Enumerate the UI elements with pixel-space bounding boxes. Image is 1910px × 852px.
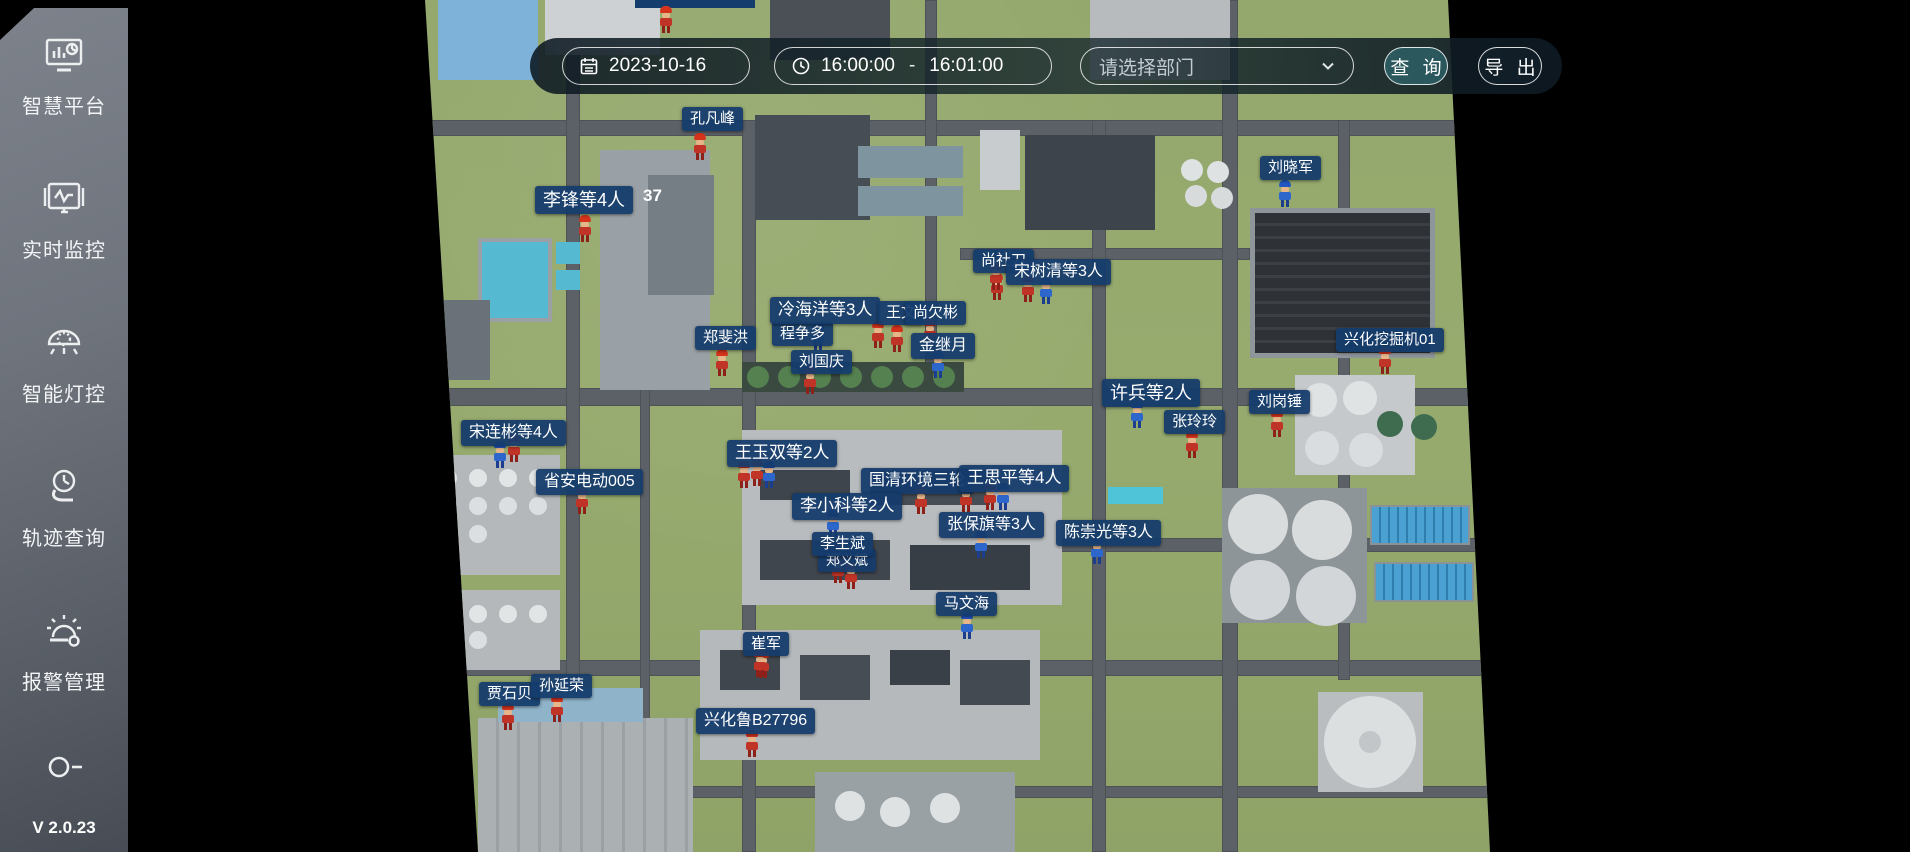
map-road (425, 120, 1465, 136)
map-name-label[interactable]: 张玲玲 (1164, 410, 1225, 434)
worker-body (502, 715, 514, 723)
map-name-label[interactable]: 李锋等4人 (535, 186, 633, 214)
map-building (1108, 487, 1163, 504)
worker-legs (834, 576, 842, 583)
map-tank (529, 497, 547, 515)
map-tank (1343, 381, 1377, 415)
map-name-label[interactable]: 宋连彬等4人 (461, 420, 566, 446)
map-tank (1377, 411, 1403, 437)
map-building (755, 115, 870, 220)
worker-marker-red[interactable] (714, 349, 730, 376)
person-icon (41, 754, 87, 800)
map-building (960, 660, 1030, 705)
map-name-label[interactable]: 省安电动005 (536, 469, 643, 495)
map-name-label[interactable]: 程争多 (772, 322, 833, 346)
worker-body (551, 707, 563, 715)
worker-body (716, 361, 728, 369)
worker-legs (934, 371, 942, 378)
department-placeholder: 请选择部门 (1099, 53, 1194, 80)
sidebar-item-track[interactable]: 轨迹查询 (0, 466, 128, 551)
worker-body (804, 379, 816, 387)
map-tank (469, 497, 487, 515)
platform-icon (41, 34, 87, 80)
worker-legs (1093, 557, 1101, 564)
map-tank (1211, 187, 1233, 209)
worker-body (1279, 192, 1291, 200)
map-name-label[interactable]: 国清环境三轮 (861, 468, 973, 494)
worker-legs (1273, 430, 1281, 437)
map-building (858, 146, 963, 178)
worker-legs (504, 723, 512, 730)
department-select[interactable]: 请选择部门 (1080, 47, 1354, 85)
map-building (1370, 505, 1470, 545)
worker-body (932, 363, 944, 371)
worker-marker-blue[interactable] (959, 612, 975, 639)
map-tank (469, 525, 487, 543)
map-name-label[interactable]: 兴化鲁B27796 (696, 708, 815, 734)
map-tank (902, 366, 924, 388)
track-icon (41, 466, 87, 512)
worker-legs (1281, 200, 1289, 207)
worker-body (915, 499, 927, 507)
map-building (1374, 562, 1474, 602)
worker-body (891, 337, 903, 345)
map-tank (1230, 560, 1290, 620)
worker-legs (553, 715, 561, 722)
map-building (890, 650, 950, 685)
map-building (1025, 135, 1155, 230)
worker-legs (847, 582, 855, 589)
map-tank (469, 631, 487, 649)
map-name-label[interactable]: 孔凡峰 (682, 107, 743, 131)
monitor-icon (41, 178, 87, 224)
worker-legs (578, 507, 586, 514)
helmet-icon (716, 349, 728, 356)
map-name-label[interactable]: 李小科等2人 (792, 493, 902, 520)
map-tank (1181, 159, 1203, 181)
worker-marker-blue[interactable] (1277, 180, 1293, 207)
worker-body (1379, 359, 1391, 367)
worker-legs (986, 503, 994, 510)
worker-body (990, 275, 1002, 283)
worker-body (827, 522, 839, 530)
worker-legs (874, 341, 882, 348)
worker-body (960, 497, 972, 505)
worker-legs (696, 153, 704, 160)
map-tank (499, 497, 517, 515)
map-tank (930, 793, 960, 823)
worker-legs (510, 455, 518, 462)
map-tank (835, 791, 865, 821)
map-building (556, 270, 580, 290)
sidebar-item-label: 实时监控 (0, 234, 128, 263)
map-name-label[interactable]: 王思平等4人 (959, 465, 1069, 492)
time-range-picker[interactable]: 16:00:00 - 16:01:00 (774, 47, 1052, 85)
map-tank (439, 497, 457, 515)
map-building (478, 718, 693, 852)
map-name-label[interactable]: 陈崇光等3人 (1056, 520, 1161, 546)
helmet-icon (660, 6, 672, 13)
export-button[interactable]: 导 出 (1478, 47, 1542, 85)
worker-body (576, 499, 588, 507)
sidebar-item-monitor[interactable]: 实时监控 (0, 178, 128, 263)
worker-marker-red[interactable] (744, 730, 760, 757)
worker-legs (999, 503, 1007, 510)
map-name-label[interactable]: 刘晓军 (1260, 156, 1321, 180)
time-start-value: 16:00:00 (821, 55, 895, 77)
map-building (858, 186, 963, 216)
map-name-label[interactable]: 郑斐洪 (695, 326, 756, 350)
worker-body (746, 742, 758, 750)
map-count-text: 37 (643, 186, 662, 206)
map-tank (880, 797, 910, 827)
map-name-label[interactable]: 王玉双等2人 (727, 440, 837, 467)
time-end-value: 16:01:00 (929, 55, 1003, 77)
worker-legs (756, 670, 764, 677)
worker-body (975, 543, 987, 551)
worker-legs (765, 481, 773, 488)
map-tank (747, 366, 769, 388)
worker-body (494, 453, 506, 461)
worker-legs (1188, 451, 1196, 458)
map-tank (439, 631, 457, 649)
map-name-label[interactable]: 刘岗锤 (1249, 390, 1310, 414)
map-building (635, 0, 755, 8)
map-building (430, 300, 490, 380)
chevron-down-icon (1319, 57, 1337, 75)
worker-body (754, 662, 766, 670)
worker-legs (977, 551, 985, 558)
sidebar-item-label: 轨迹查询 (0, 522, 128, 551)
sidebar-item-light[interactable]: 智能灯控 (0, 322, 128, 407)
map-name-label[interactable]: 马文海 (936, 592, 997, 616)
worker-legs (1042, 297, 1050, 304)
version-label: V 2.0.23 (0, 818, 128, 838)
time-separator: - (909, 55, 915, 77)
map-tank (439, 605, 457, 623)
map-name-label[interactable]: 兴化挖掘机01 (1336, 328, 1444, 352)
helmet-icon (694, 133, 706, 140)
date-picker[interactable]: 2023-10-16 (562, 47, 750, 85)
map-name-label[interactable]: 张保旗等3人 (939, 512, 1044, 538)
map-tank (469, 605, 487, 623)
sidebar-item-label: 报警管理 (0, 666, 128, 695)
map-tank (499, 469, 517, 487)
date-value: 2023-10-16 (609, 55, 706, 77)
worker-legs (993, 293, 1001, 300)
worker-marker-red[interactable] (577, 215, 593, 242)
sidebar-item-label: 智能灯控 (0, 378, 128, 407)
sidebar-item-label: 智慧平台 (0, 90, 128, 119)
worker-legs (917, 507, 925, 514)
worker-marker-red[interactable] (500, 703, 516, 730)
query-button[interactable]: 查 询 (1384, 47, 1448, 85)
worker-body (1271, 422, 1283, 430)
worker-body (763, 473, 775, 481)
worker-body (694, 145, 706, 153)
worker-marker-red[interactable] (870, 321, 886, 348)
calendar-icon (579, 56, 599, 76)
worker-marker-red[interactable] (692, 133, 708, 160)
worker-marker-red[interactable] (889, 325, 905, 352)
map-tank (1292, 500, 1352, 560)
helmet-icon (891, 325, 903, 332)
map-building (556, 242, 580, 264)
map-building (430, 590, 560, 670)
worker-legs (806, 387, 814, 394)
map-name-label[interactable]: 许兵等2人 (1102, 379, 1200, 407)
map-building (980, 130, 1020, 190)
map-tank (499, 605, 517, 623)
worker-body (872, 333, 884, 341)
map-building (800, 655, 870, 700)
sidebar-item-platform[interactable]: 智慧平台 (0, 34, 128, 119)
worker-legs (662, 26, 670, 33)
map-name-label[interactable]: 刘国庆 (791, 350, 852, 374)
worker-body (660, 18, 672, 26)
query-toolbar: 2023-10-16 16:00:00 - 16:01:00 请选择部门 查 询… (530, 38, 1562, 94)
map-name-label[interactable]: 金继月 (911, 333, 975, 359)
worker-body (845, 574, 857, 582)
map-tank (529, 605, 547, 623)
worker-body (1040, 289, 1052, 297)
map-3d-view[interactable]: 程争多冷海洋等3人王文尚欠彬金继月刘国庆郑斐洪尚社刀宋树清等3人孔凡峰李锋等4人… (0, 0, 1910, 852)
map-tank (1359, 731, 1381, 753)
map-tank (1228, 494, 1288, 554)
worker-legs (962, 505, 970, 512)
worker-legs (1381, 367, 1389, 374)
worker-legs (740, 481, 748, 488)
worker-legs (963, 632, 971, 639)
map-name-label[interactable]: 孙延荣 (531, 674, 592, 698)
map-tank (1305, 431, 1339, 465)
map-name-label[interactable]: 尚欠彬 (905, 301, 966, 325)
helmet-icon (579, 215, 591, 222)
map-building (910, 545, 1030, 590)
map-tank (1296, 566, 1356, 626)
sidebar-item-person[interactable] (0, 754, 128, 810)
worker-body (579, 227, 591, 235)
alarm-icon (41, 610, 87, 656)
worker-legs (992, 283, 1000, 290)
clock-icon (791, 56, 811, 76)
worker-marker-red[interactable] (1184, 431, 1200, 458)
map-building (438, 0, 538, 80)
map-name-label[interactable]: 宋树清等3人 (1006, 259, 1111, 285)
worker-legs (496, 461, 504, 468)
map-tank (439, 525, 457, 543)
map-name-label[interactable]: 崔军 (743, 632, 789, 656)
worker-body (1022, 287, 1034, 295)
sidebar-item-alarm[interactable]: 报警管理 (0, 610, 128, 695)
worker-body (997, 495, 1009, 503)
worker-legs (581, 235, 589, 242)
worker-legs (753, 479, 761, 486)
sidebar-nav: 智慧平台实时监控智能灯控轨迹查询报警管理 V 2.0.23 (0, 0, 128, 852)
worker-legs (748, 750, 756, 757)
worker-body (1091, 549, 1103, 557)
map-tank (1185, 185, 1207, 207)
worker-legs (1133, 421, 1141, 428)
worker-legs (1024, 295, 1032, 302)
worker-marker-red[interactable] (658, 6, 674, 33)
worker-body (1186, 443, 1198, 451)
worker-body (1131, 413, 1143, 421)
worker-marker-red[interactable] (549, 695, 565, 722)
worker-legs (718, 369, 726, 376)
map-tank (439, 469, 457, 487)
map-tank (871, 366, 893, 388)
light-icon (41, 322, 87, 368)
map-name-label[interactable]: 李生斌 (812, 532, 873, 556)
worker-body (508, 447, 520, 455)
app-window: 程争多冷海洋等3人王文尚欠彬金继月刘国庆郑斐洪尚社刀宋树清等3人孔凡峰李锋等4人… (0, 0, 1910, 852)
map-tank (469, 469, 487, 487)
worker-body (961, 624, 973, 632)
worker-legs (893, 345, 901, 352)
map-tank (1207, 161, 1229, 183)
map-tank (1349, 433, 1383, 467)
helmet-icon (1279, 180, 1291, 187)
map-tank (1411, 414, 1437, 440)
map-name-label[interactable]: 冷海洋等3人 (770, 297, 880, 324)
worker-marker-red[interactable] (1269, 410, 1285, 437)
